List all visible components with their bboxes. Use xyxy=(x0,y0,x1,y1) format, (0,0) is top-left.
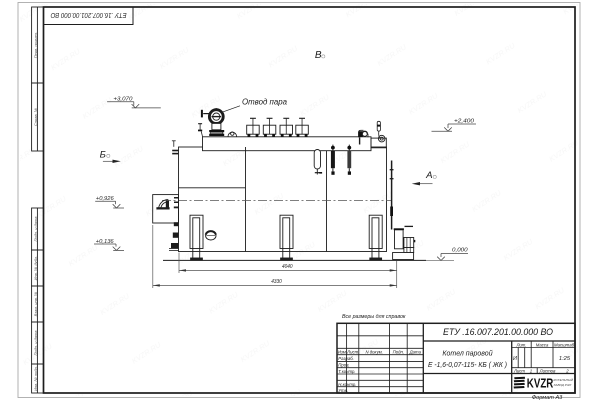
svg-text:Утв.: Утв. xyxy=(338,388,348,393)
svg-text:+3,070: +3,070 xyxy=(113,96,133,102)
svg-text:+2,400: +2,400 xyxy=(454,118,475,124)
svg-text:ЕТУ .16.007.201.00.000 ВО: ЕТУ .16.007.201.00.000 ВО xyxy=(51,11,127,20)
svg-text:Справ. №: Справ. № xyxy=(33,107,38,126)
svg-text:Взам. инв. №: Взам. инв. № xyxy=(33,291,38,316)
svg-text:В: В xyxy=(315,50,322,61)
svg-text:Котел паровой: Котел паровой xyxy=(442,349,492,357)
svg-text:Изм: Изм xyxy=(338,350,346,355)
svg-text:Подп. и дата: Подп. и дата xyxy=(33,330,38,356)
svg-text:+0,926: +0,926 xyxy=(96,196,115,202)
svg-text:N докум.: N докум. xyxy=(366,350,383,355)
svg-text:Инв. № дубл.: Инв. № дубл. xyxy=(33,256,38,281)
svg-text:ЕТУ .16.007.201.00.000 ВО: ЕТУ .16.007.201.00.000 ВО xyxy=(443,327,553,337)
svg-text:Отвод пара: Отвод пара xyxy=(242,97,287,106)
svg-text:Формат А3: Формат А3 xyxy=(532,395,563,400)
svg-text:Листов: Листов xyxy=(539,369,556,374)
svg-text:4330: 4330 xyxy=(271,279,282,285)
svg-text:Е -1,6-0,07-115- КБ ( ЖК ): Е -1,6-0,07-115- КБ ( ЖК ) xyxy=(428,362,507,369)
svg-text:И: И xyxy=(513,356,517,362)
svg-text:4040: 4040 xyxy=(282,264,293,270)
svg-text:Дата: Дата xyxy=(409,350,422,355)
svg-text:KVZR: KVZR xyxy=(527,376,554,390)
svg-text:Н.контр.: Н.контр. xyxy=(338,382,356,387)
svg-text:Масштаб: Масштаб xyxy=(554,342,575,347)
svg-text:+0,136: +0,136 xyxy=(96,239,115,245)
svg-text:Разраб.: Разраб. xyxy=(338,356,354,361)
svg-text:0,000: 0,000 xyxy=(452,247,469,253)
svg-text:Масса: Масса xyxy=(536,342,549,347)
svg-text:Все размеры для справок: Все размеры для справок xyxy=(342,314,406,320)
svg-text:Перв. примен.: Перв. примен. xyxy=(33,32,38,59)
svg-text:Пров.: Пров. xyxy=(338,363,349,368)
svg-text:Инв. № подл.: Инв. № подл. xyxy=(33,366,38,391)
svg-text:Лист: Лист xyxy=(513,369,525,374)
svg-text:Лит.: Лит. xyxy=(515,342,526,347)
svg-text:Т.контр.: Т.контр. xyxy=(338,369,355,374)
svg-text:Лист: Лист xyxy=(346,350,358,355)
svg-text:КОТЕЛЬНЫЙ: КОТЕЛЬНЫЙ xyxy=(554,378,574,382)
svg-text:Подп.: Подп. xyxy=(393,350,404,355)
svg-text:Подп. и дата: Подп. и дата xyxy=(33,216,38,242)
svg-text:А: А xyxy=(425,170,432,181)
svg-text:Б: Б xyxy=(100,149,106,160)
svg-text:1:25: 1:25 xyxy=(559,356,571,362)
svg-text:ЗАВОД РЭП: ЗАВОД РЭП xyxy=(554,383,573,387)
